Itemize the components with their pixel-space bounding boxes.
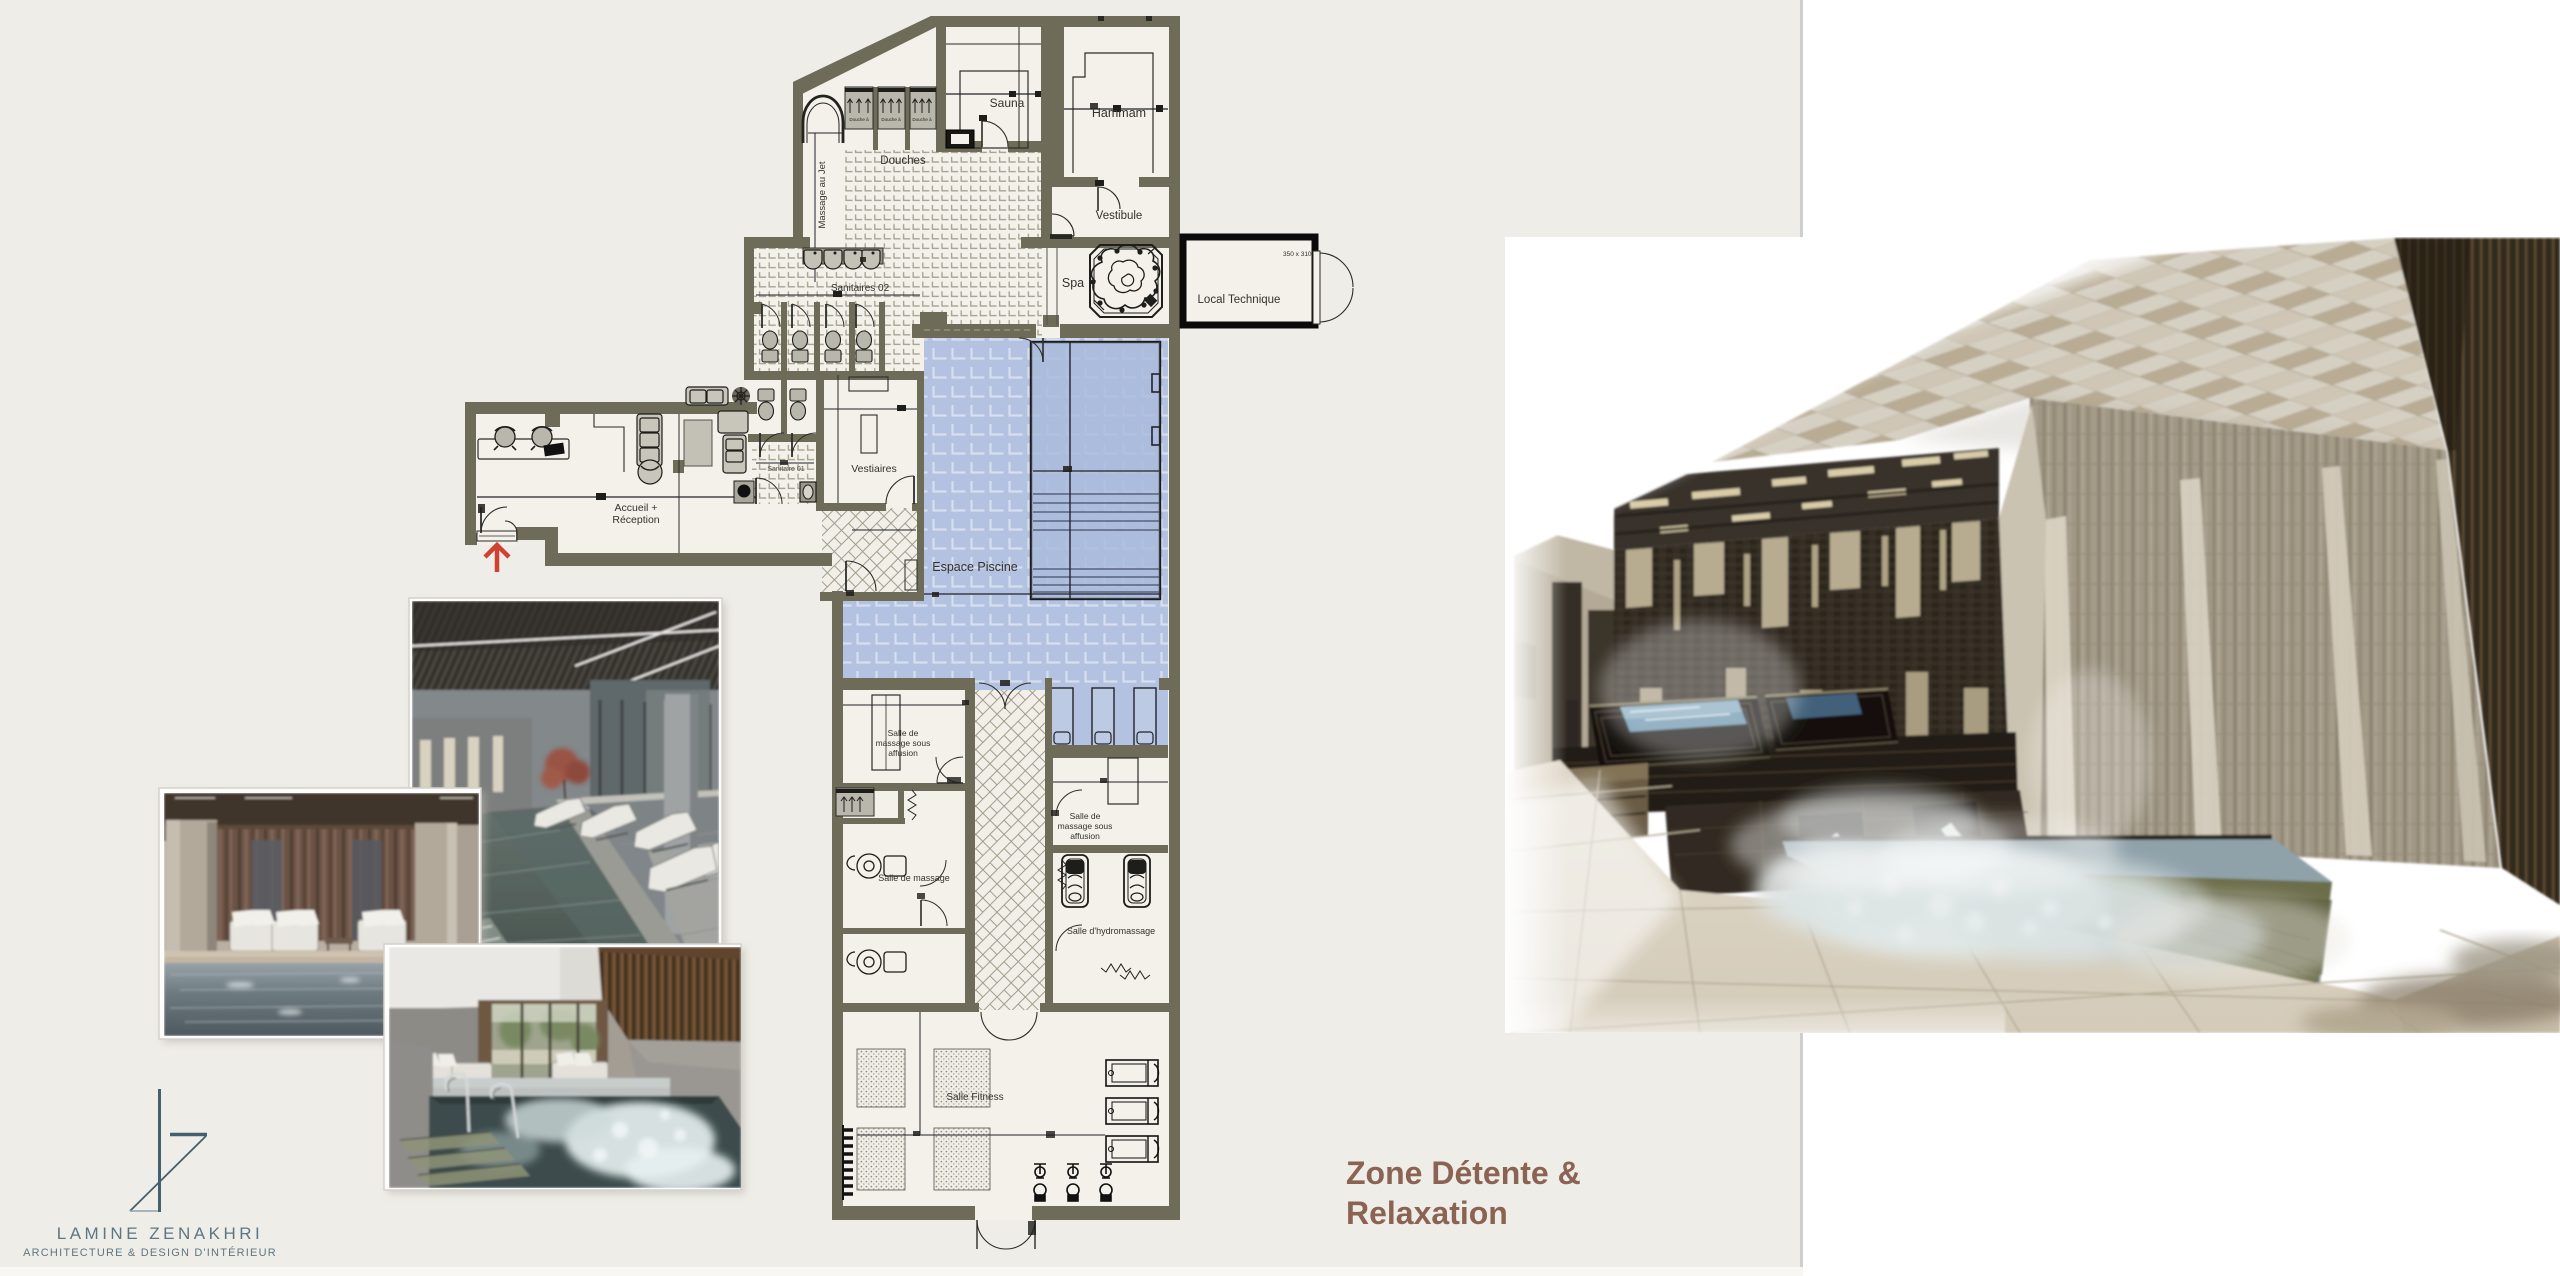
svg-text:Massage au Jet: Massage au Jet xyxy=(817,161,828,228)
svg-text:massage sous: massage sous xyxy=(876,738,931,748)
svg-text:Zone Détente &: Zone Détente & xyxy=(1346,1155,1581,1191)
svg-text:Salle Fitness: Salle Fitness xyxy=(946,1092,1003,1103)
svg-text:ARCHITECTURE & DESIGN D'INTÉRI: ARCHITECTURE & DESIGN D'INTÉRIEUR xyxy=(23,1246,277,1259)
svg-text:Local Technique: Local Technique xyxy=(1198,294,1281,306)
svg-text:Espace Piscine: Espace Piscine xyxy=(932,560,1018,574)
svg-text:Douche à: Douche à xyxy=(881,117,901,122)
svg-text:Vestiaires: Vestiaires xyxy=(851,463,897,475)
svg-text:Hammam: Hammam xyxy=(1092,106,1146,120)
svg-text:Douches: Douches xyxy=(880,155,926,167)
svg-text:Salle de: Salle de xyxy=(888,728,919,738)
svg-text:Sanitaires 02: Sanitaires 02 xyxy=(831,283,890,294)
svg-text:Spa: Spa xyxy=(1062,276,1084,290)
svg-text:Vestibule: Vestibule xyxy=(1096,210,1143,222)
svg-text:affusion: affusion xyxy=(1070,831,1100,841)
svg-text:Salle de: Salle de xyxy=(1070,811,1101,821)
svg-text:massage sous: massage sous xyxy=(1058,821,1113,831)
svg-text:Sanitaire 01: Sanitaire 01 xyxy=(767,466,804,473)
svg-text:Réception: Réception xyxy=(612,514,659,526)
svg-text:Douche à: Douche à xyxy=(912,117,932,122)
svg-text:Accueil +: Accueil + xyxy=(615,502,658,514)
svg-text:Salle de massage: Salle de massage xyxy=(878,873,950,883)
svg-text:Relaxation: Relaxation xyxy=(1346,1195,1508,1231)
svg-text:Sauna: Sauna xyxy=(990,96,1025,110)
svg-text:350 x 310: 350 x 310 xyxy=(1283,251,1312,258)
svg-text:affusion: affusion xyxy=(888,748,918,758)
svg-text:LAMINE ZENAKHRI: LAMINE ZENAKHRI xyxy=(57,1224,263,1243)
svg-text:Douche à: Douche à xyxy=(849,117,869,122)
svg-text:Salle d'hydromassage: Salle d'hydromassage xyxy=(1067,926,1155,936)
